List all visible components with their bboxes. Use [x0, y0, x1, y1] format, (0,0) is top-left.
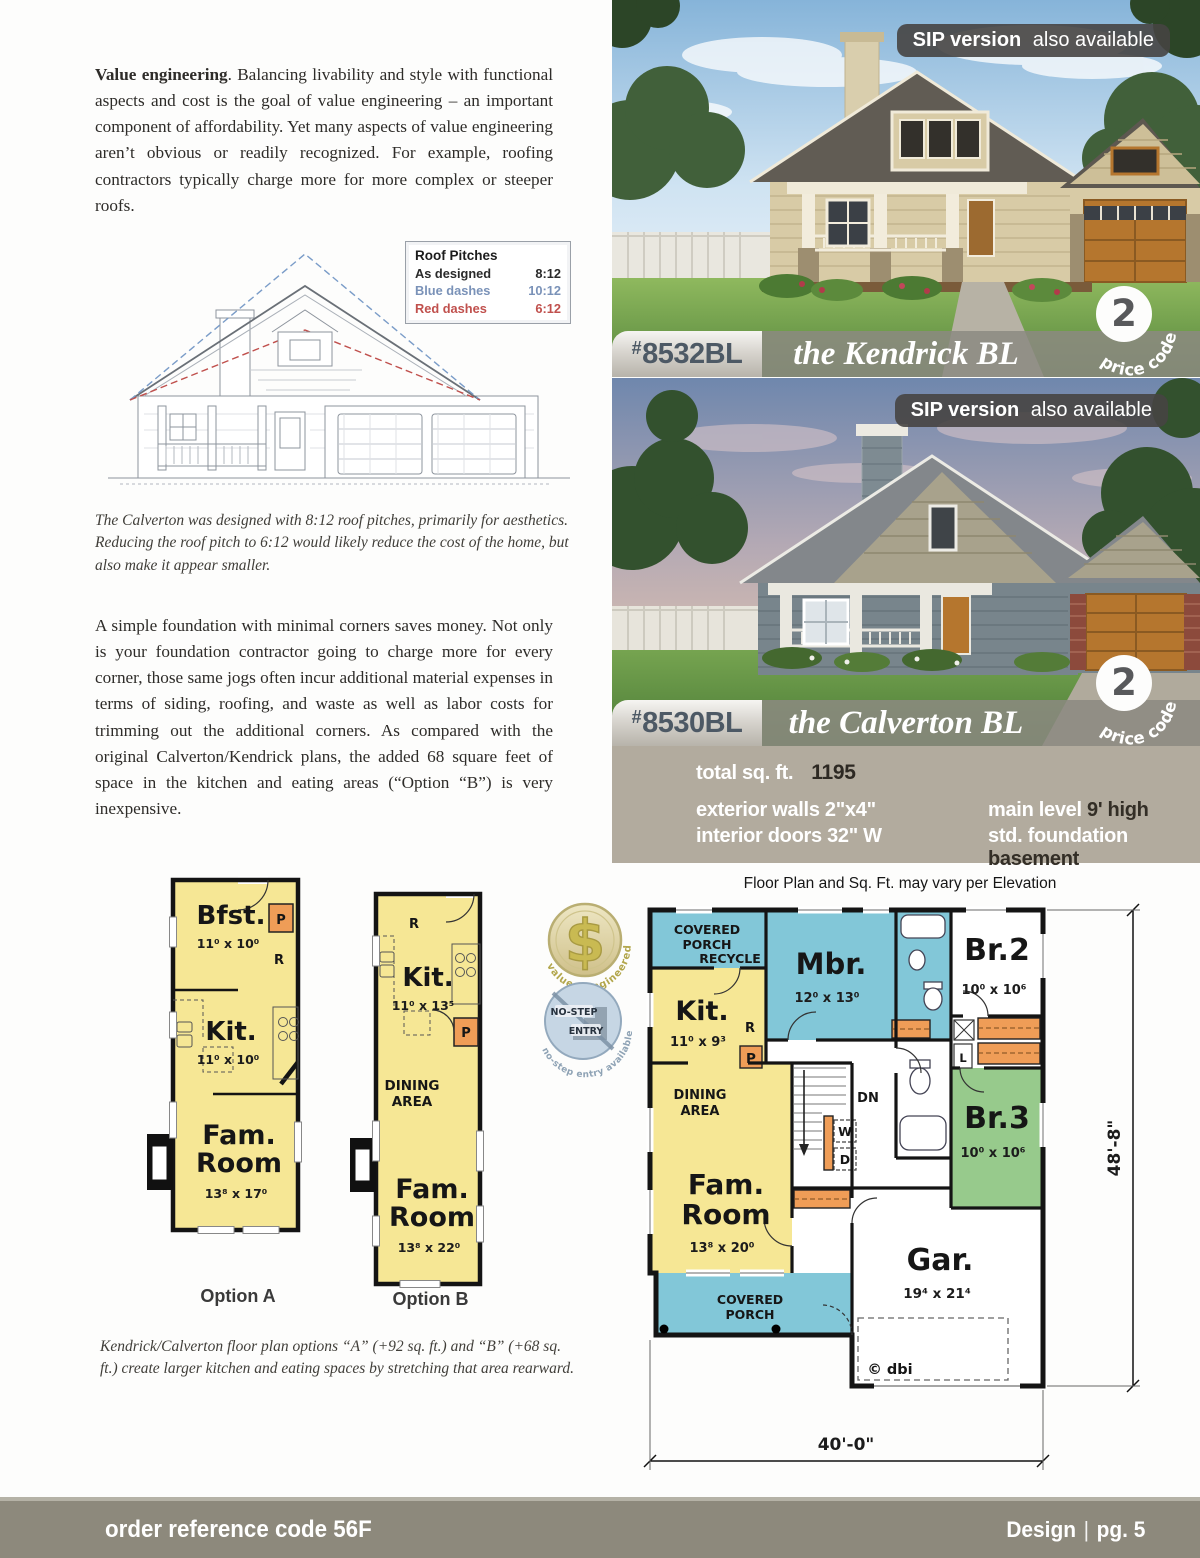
fam-dims: 13⁸ x 20⁰: [689, 1241, 754, 1256]
option-a-fam-label-2: Room: [196, 1148, 282, 1179]
spec-label: interior doors: [696, 825, 822, 847]
br3-dims: 10⁰ x 10⁶: [960, 1146, 1025, 1161]
width-dimension: 40'-0": [818, 1435, 875, 1455]
sip-banner: SIP version also available: [895, 394, 1168, 427]
sip-bold: SIP version: [911, 399, 1020, 422]
plan-number-hash: #: [632, 338, 642, 359]
dbi-copyright: © dbi: [867, 1362, 912, 1378]
catalog-page: Value engineering. Balancing livability …: [0, 0, 1200, 1558]
dining-label-1: DINING: [674, 1088, 727, 1103]
option-b-pantry-label: P: [461, 1026, 471, 1041]
br2-label: Br.2: [964, 933, 1030, 968]
spec-value: 2"x4": [825, 799, 876, 821]
floor-plan-option-b: R Kit. 11⁰ x 13⁵ P DINING AREA Fam. Room…: [348, 886, 513, 1311]
bedroom-3: [951, 1068, 1043, 1208]
garage-dims: 19⁴ x 21⁴: [903, 1286, 971, 1302]
no-step-label-1: NO-STEP: [551, 1007, 598, 1018]
spec-value: 32" W: [827, 825, 882, 847]
total-sqft-value: 1195: [811, 761, 855, 784]
spec-label: main level: [988, 799, 1082, 821]
porch-bottom-label-2: PORCH: [725, 1307, 774, 1322]
total-sqft-label: total sq. ft.: [696, 762, 793, 784]
option-a-bfst-label: Bfst.: [197, 901, 266, 931]
plan-number: 8532BL: [642, 338, 742, 371]
floor-plan-note: Floor Plan and Sq. Ft. may vary per Elev…: [640, 875, 1160, 893]
legend-title: Roof Pitches: [415, 248, 561, 263]
footer-page-number: pg. 5: [1096, 1517, 1145, 1542]
legend-blue-label: Blue dashes: [415, 282, 490, 299]
option-b-kit-label: Kit.: [402, 963, 453, 993]
linen-label: L: [959, 1051, 967, 1065]
legend-as-value: 8:12: [535, 265, 561, 282]
spec-main-level: main level 9' high: [988, 799, 1200, 825]
mbr-dims: 12⁰ x 13⁰: [794, 991, 859, 1006]
br2-dims: 10⁰ x 10⁶: [961, 983, 1026, 998]
legend-row-as-designed: As designed8:12: [415, 265, 561, 282]
roof-pitch-legend: Roof Pitches As designed8:12 Blue dashes…: [405, 241, 571, 324]
kit-dims: 11⁰ x 9³: [670, 1035, 726, 1050]
fam-label-1: Fam.: [688, 1168, 764, 1201]
recycle-label: RECYCLE: [699, 951, 761, 966]
spec-value: basement: [988, 848, 1079, 870]
option-b-fam-label-2: Room: [389, 1202, 475, 1233]
plan-number-hash: #: [632, 707, 642, 728]
dryer-label: D: [840, 1152, 850, 1167]
option-b-fridge-label: R: [409, 917, 419, 932]
spec-exterior-walls: exterior walls 2"x4": [696, 799, 988, 825]
house-card-kendrick: SIP version also available #8532BL the K…: [612, 0, 1200, 377]
total-sqft-row: total sq. ft.1195: [696, 761, 1200, 785]
price-code-value: 2: [1111, 292, 1137, 335]
option-a-fam-dims: 13⁸ x 17⁰: [205, 1186, 268, 1201]
caption-floor-plan-options: Kendrick/Calverton floor plan options “A…: [100, 1336, 578, 1381]
main-floor-plan: COVERED PORCH RECYCLE Kit. 11⁰ x 9³ R P …: [628, 898, 1200, 1498]
page-indicator: Design|pg. 5: [1006, 1517, 1145, 1543]
porch-top-label-1: COVERED: [674, 922, 740, 937]
floor-plan-option-a: Bfst. 11⁰ x 10⁰ P R Kit. 11⁰ x 10⁰ Fam. …: [143, 872, 333, 1277]
sip-bold: SIP version: [913, 29, 1022, 52]
spec-label: exterior walls: [696, 799, 820, 821]
para1-body: . Balancing livability and style with fu…: [95, 65, 553, 215]
dining-label-2: AREA: [680, 1104, 719, 1119]
option-a-pantry-label: P: [276, 913, 286, 928]
option-b-dining-label-1: DINING: [385, 1078, 440, 1094]
legend-row-blue-dashes: Blue dashes10:12: [415, 282, 561, 299]
spec-std-foundation: std. foundation basement: [988, 825, 1200, 851]
price-code-badge: 2 price code: [1052, 637, 1192, 746]
house-card-calverton: SIP version also available #8530BL the C…: [612, 378, 1200, 746]
washer-label: W: [838, 1124, 852, 1139]
option-b-fam-dims: 13⁸ x 22⁰: [398, 1240, 461, 1255]
option-b-kit-dims: 11⁰ x 13⁵: [392, 998, 455, 1013]
legend-red-label: Red dashes: [415, 300, 487, 317]
no-step-entry-badge: NO-STEP ENTRY no-step entry available: [533, 976, 639, 1082]
price-code-value: 2: [1111, 661, 1137, 704]
fam-label-2: Room: [681, 1198, 770, 1231]
spec-value: 9' high: [1087, 799, 1149, 821]
option-a-kit-label: Kit.: [205, 1017, 256, 1047]
option-a-fridge-label: R: [274, 953, 284, 968]
option-b-caption: Option B: [348, 1289, 513, 1310]
paragraph-foundation: A simple foundation with minimal corners…: [95, 613, 553, 822]
footer-design-label: Design: [1006, 1517, 1076, 1542]
sip-banner: SIP version also available: [897, 24, 1170, 57]
kit-label: Kit.: [675, 996, 728, 1027]
fridge-label: R: [745, 1021, 755, 1036]
para1-lead: Value engineering: [95, 65, 228, 84]
no-step-label-2: ENTRY: [569, 1026, 604, 1037]
footer-separator: |: [1083, 1517, 1088, 1542]
price-code-badge: 2 price code: [1052, 268, 1192, 377]
order-reference-code: order reference code 56F: [105, 1516, 372, 1544]
garage-label: Gar.: [907, 1243, 974, 1278]
option-a-kit-dims: 11⁰ x 10⁰: [197, 1052, 260, 1067]
footer-bar: order reference code 56F Design|pg. 5: [0, 1497, 1200, 1558]
br3-label: Br.3: [964, 1101, 1030, 1136]
pantry-label: P: [746, 1051, 756, 1067]
plan-number: 8530BL: [642, 707, 742, 740]
sip-rest: also available: [1025, 399, 1152, 422]
option-a-caption: Option A: [143, 1286, 333, 1307]
mbr-label: Mbr.: [796, 947, 867, 981]
porch-top-label-2: PORCH: [682, 937, 731, 952]
paragraph-value-engineering: Value engineering. Balancing livability …: [95, 62, 553, 219]
depth-dimension: 48'-8": [1105, 1120, 1125, 1177]
dollar-icon: $: [565, 907, 605, 975]
sip-rest: also available: [1027, 29, 1154, 52]
option-a-fam-label-1: Fam.: [202, 1120, 275, 1151]
stairs-dn-label: DN: [857, 1091, 879, 1106]
legend-blue-value: 10:12: [528, 282, 561, 299]
legend-row-red-dashes: Red dashes6:12: [415, 300, 561, 317]
plan-number-chip: #8530BL: [612, 700, 762, 746]
caption-calverton-pitch: The Calverton was designed with 8:12 roo…: [95, 510, 573, 577]
porch-bottom-label-1: COVERED: [717, 1292, 783, 1307]
spec-label: std. foundation: [988, 825, 1128, 847]
specs-grid: exterior walls 2"x4" main level 9' high …: [696, 799, 1200, 851]
legend-as-label: As designed: [415, 265, 491, 282]
specs-panel: total sq. ft.1195 exterior walls 2"x4" m…: [612, 746, 1200, 863]
option-b-fam-label-1: Fam.: [395, 1174, 468, 1205]
legend-red-value: 6:12: [535, 300, 561, 317]
option-a-bfst-dims: 11⁰ x 10⁰: [197, 936, 260, 951]
spec-interior-doors: interior doors 32" W: [696, 825, 988, 851]
option-b-dining-label-2: AREA: [392, 1094, 433, 1110]
plan-number-chip: #8532BL: [612, 331, 762, 377]
